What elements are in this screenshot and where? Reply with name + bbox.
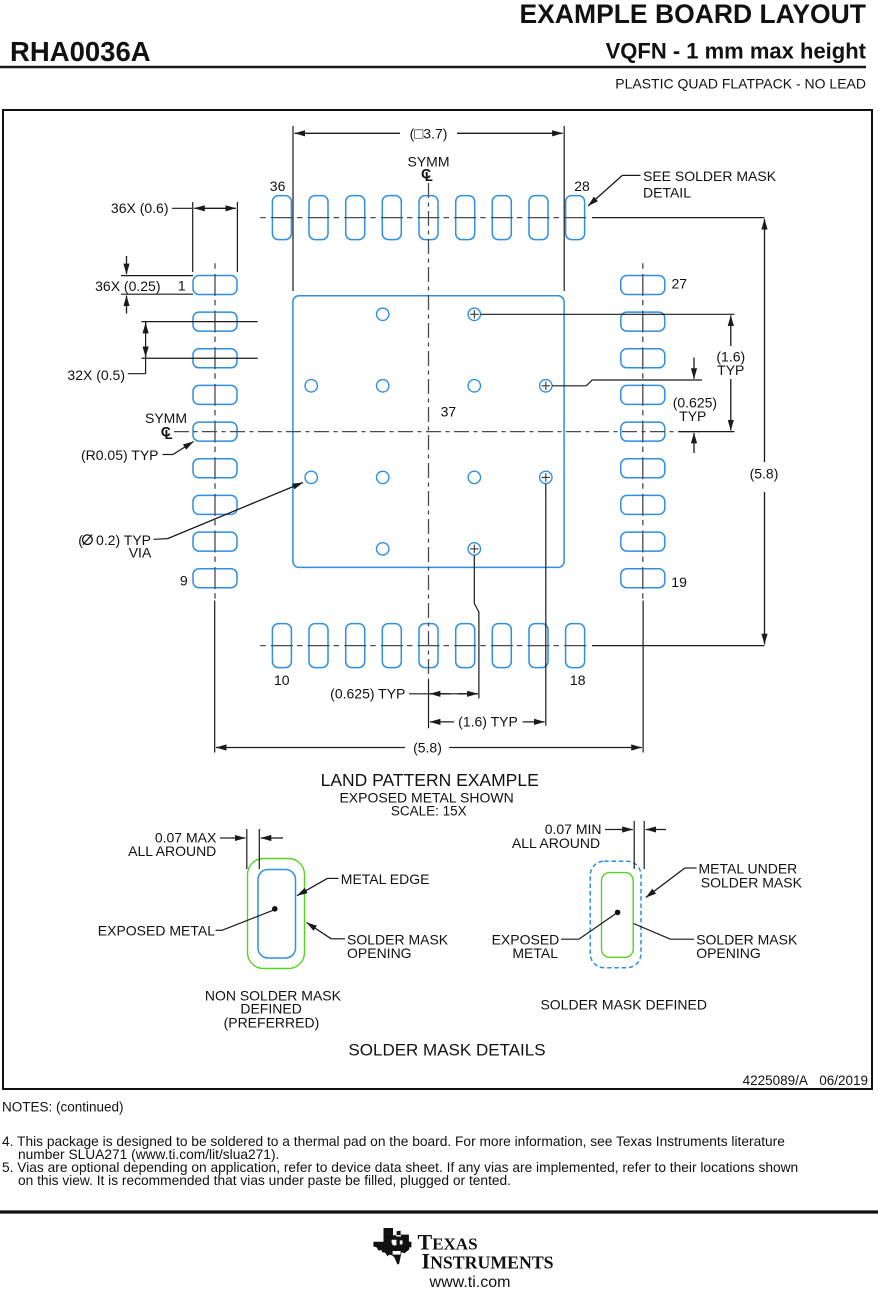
svg-text:SOLDER MASK DETAILS: SOLDER MASK DETAILS xyxy=(348,1041,545,1060)
svg-text:ALL AROUND: ALL AROUND xyxy=(512,835,600,851)
svg-text:PLASTIC QUAD FLATPACK - NO LEA: PLASTIC QUAD FLATPACK - NO LEAD xyxy=(615,76,866,92)
svg-text:19: 19 xyxy=(671,574,687,590)
svg-text:ALL AROUND: ALL AROUND xyxy=(128,843,216,859)
svg-text:EXAMPLE BOARD LAYOUT: EXAMPLE BOARD LAYOUT xyxy=(520,0,867,29)
svg-text:36: 36 xyxy=(270,178,286,194)
svg-text:18: 18 xyxy=(570,672,586,688)
svg-text:L: L xyxy=(425,169,433,184)
svg-text:METAL: METAL xyxy=(512,945,558,961)
svg-text:RHA0036A: RHA0036A xyxy=(10,36,151,67)
svg-text:VIA: VIA xyxy=(129,544,152,560)
svg-text:1: 1 xyxy=(178,278,186,294)
svg-text:36X (0.25): 36X (0.25) xyxy=(95,278,160,294)
svg-text:NOTES: (continued): NOTES: (continued) xyxy=(2,1100,124,1115)
svg-text:INSTRUMENTS: INSTRUMENTS xyxy=(422,1249,554,1274)
svg-text:28: 28 xyxy=(574,178,590,194)
svg-text:SOLDER MASK: SOLDER MASK xyxy=(701,874,803,890)
svg-text:TYP: TYP xyxy=(679,408,706,424)
svg-text:10: 10 xyxy=(274,672,290,688)
svg-text:SOLDER MASK DEFINED: SOLDER MASK DEFINED xyxy=(540,997,706,1013)
svg-text:27: 27 xyxy=(672,276,688,292)
svg-text:LAND PATTERN EXAMPLE: LAND PATTERN EXAMPLE xyxy=(321,770,539,790)
svg-text:DETAIL: DETAIL xyxy=(643,185,691,201)
svg-text:(5.8): (5.8) xyxy=(413,739,442,755)
svg-text:www.ti.com: www.ti.com xyxy=(429,1274,511,1288)
svg-text:32X (0.5): 32X (0.5) xyxy=(67,367,125,383)
svg-text:OPENING: OPENING xyxy=(347,945,412,961)
svg-text:(R0.05) TYP: (R0.05) TYP xyxy=(81,447,159,463)
svg-text:4225089/A 06/2019: 4225089/A 06/2019 xyxy=(743,1073,868,1088)
svg-text:on this view. It is recommende: on this view. It is recommended that via… xyxy=(18,1173,511,1188)
svg-text:(1.6) TYP: (1.6) TYP xyxy=(458,713,518,729)
svg-text:(5.8): (5.8) xyxy=(750,466,779,482)
svg-text:SCALE: 15X: SCALE: 15X xyxy=(391,804,467,819)
svg-text:VQFN - 1 mm max height: VQFN - 1 mm max height xyxy=(606,39,867,64)
svg-text:(□3.7): (□3.7) xyxy=(410,125,448,142)
svg-text:OPENING: OPENING xyxy=(696,945,761,961)
svg-text:TYP: TYP xyxy=(717,362,744,378)
svg-text:9: 9 xyxy=(180,573,188,589)
svg-text:(0.625) TYP: (0.625) TYP xyxy=(330,685,405,701)
svg-text:SEE SOLDER MASK: SEE SOLDER MASK xyxy=(643,168,777,184)
svg-text:36X (0.6): 36X (0.6) xyxy=(111,200,169,216)
svg-text:L: L xyxy=(165,427,173,442)
svg-text:EXPOSED METAL: EXPOSED METAL xyxy=(98,923,215,939)
svg-text:37: 37 xyxy=(441,404,457,420)
svg-text:METAL EDGE: METAL EDGE xyxy=(341,871,430,887)
svg-text:(PREFERRED): (PREFERRED) xyxy=(224,1015,320,1031)
